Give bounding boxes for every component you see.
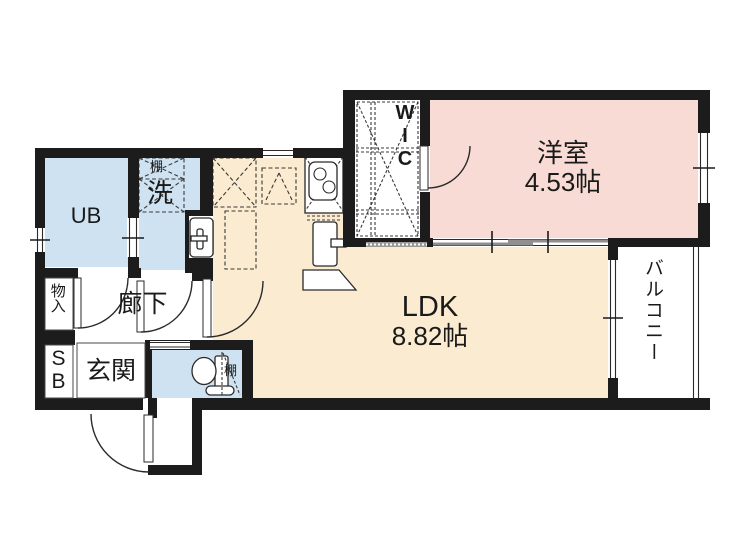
storage-label: 物入 [49,283,65,313]
laundry-label: 洗 [147,180,173,207]
kitchen-window [263,148,293,158]
wic-label: WIC [394,102,415,171]
floorplan-drawing [0,0,750,550]
floorplan: UB 棚 洗 WIC 洋室 4.53帖 LDK 8.82帖 バルコニー 廊下 物… [0,0,750,550]
western-room-label: 洋室 [488,140,638,167]
hallway-label: 廊下 [100,291,185,317]
western-room-size: 4.53帖 [488,169,638,196]
washbasin-fixture-overlay [190,218,213,257]
toilet-sliding-door [150,341,190,349]
wic-lower-opening [366,242,427,247]
laundry-shelf-label: 棚 [150,160,163,174]
balcony-label: バルコニー [642,258,662,363]
entrance-label: 玄関 [79,358,143,384]
ldk-label: LDK [350,292,510,322]
entrance-door [91,414,153,472]
toilet-shelf-label: 棚 [224,364,237,378]
ldk-size: 8.82帖 [350,323,510,350]
unit-bath-label: UB [58,204,114,227]
shoe-box-label: SB [47,347,69,393]
